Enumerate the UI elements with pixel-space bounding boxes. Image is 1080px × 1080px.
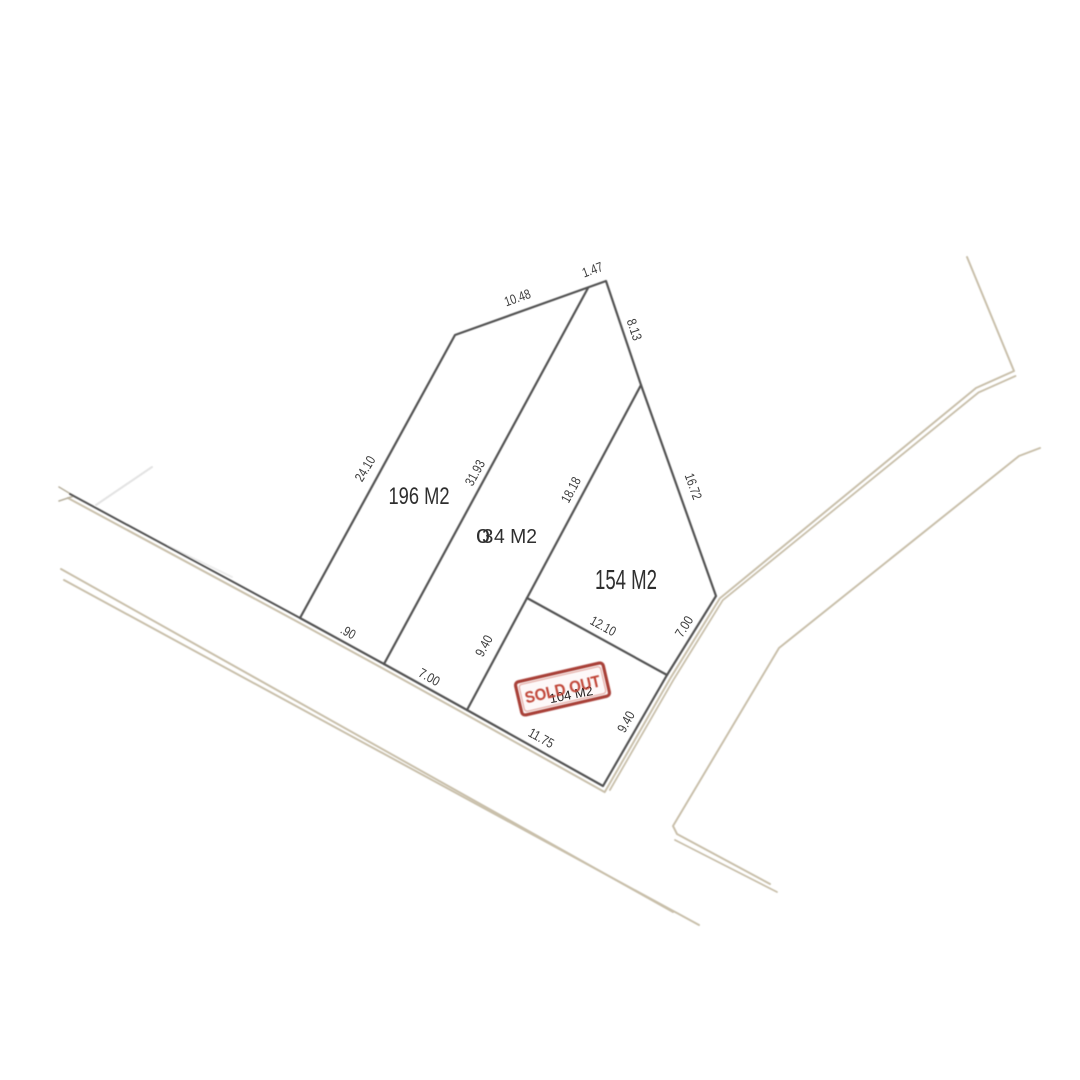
svg-text:196 M2: 196 M2 [389, 483, 450, 510]
svg-text:4 M2: 4 M2 [494, 525, 537, 548]
svg-text:154 M2: 154 M2 [595, 564, 657, 595]
svg-text:3: 3 [482, 525, 493, 548]
